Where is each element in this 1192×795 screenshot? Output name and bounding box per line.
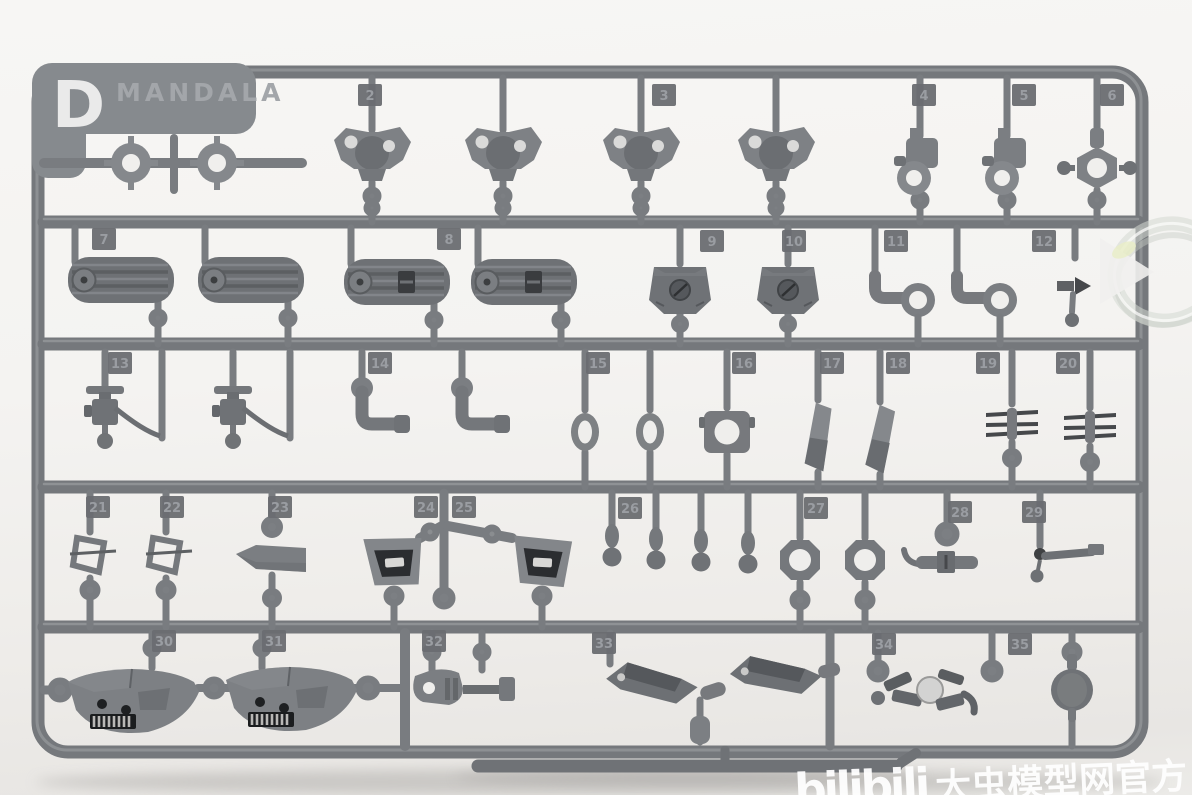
part-8-coil: [471, 259, 577, 305]
svg-text:18: 18: [889, 357, 907, 372]
part-number-tag: 9: [700, 230, 724, 252]
part-number-tag: 8: [437, 228, 461, 250]
svg-text:10: 10: [785, 235, 803, 250]
part-27-hex-ring: [780, 540, 820, 580]
bilibili-logo: bilibili: [793, 762, 928, 795]
part-number-tag: 19: [976, 352, 1000, 374]
svg-text:27: 27: [807, 502, 825, 517]
part-14-elbow-joint: [351, 377, 410, 433]
part-11-pipe-ring: [957, 276, 1017, 344]
svg-text:9: 9: [707, 235, 716, 250]
part-washer-a: [104, 136, 158, 190]
part-number-tag: 22: [160, 496, 184, 518]
part-25-scoop: [512, 536, 572, 588]
part-number-tag: 17: [820, 352, 844, 374]
svg-text:13: 13: [111, 357, 129, 372]
part-22-frame: [146, 538, 192, 572]
svg-text:2: 2: [365, 89, 374, 104]
part-28-t-bar: [904, 550, 978, 573]
part-number-tag: 31: [262, 630, 286, 652]
svg-text:25: 25: [455, 501, 473, 516]
part-9-chest-plate: [649, 267, 711, 314]
svg-text:11: 11: [887, 235, 905, 250]
part-2-torso: [465, 127, 542, 181]
sprue-photo: D MANDALA: [0, 0, 1192, 795]
photo-shadows: [35, 232, 1165, 795]
svg-text:16: 16: [735, 357, 753, 372]
part-14-elbow-joint: [451, 377, 510, 433]
part-number-tag: 13: [108, 352, 132, 374]
part-number-tag: 10: [782, 230, 806, 252]
part-23-wing: [236, 545, 306, 572]
part-3-torso: [603, 127, 680, 181]
part-30-hull: [68, 669, 199, 733]
part-35-disc: [1051, 654, 1093, 722]
part-16-square-ring: [699, 411, 755, 453]
svg-text:6: 6: [1107, 89, 1116, 104]
svg-text:29: 29: [1025, 506, 1043, 521]
part-13-clamp: [84, 386, 288, 449]
part-number-tag: 20: [1056, 352, 1080, 374]
svg-text:7: 7: [99, 233, 108, 248]
part-17-fin: [804, 402, 832, 471]
part-24-scoop: [363, 535, 424, 588]
part-15-oval-ring: [571, 413, 599, 451]
svg-text:22: 22: [163, 501, 181, 516]
part-number-tag: 15: [586, 352, 610, 374]
part-washer-b: [190, 136, 244, 190]
part-number-tag: 11: [884, 230, 908, 252]
part-3-torso: [738, 127, 815, 181]
svg-text:15: 15: [589, 357, 607, 372]
part-7-coil: [68, 257, 174, 303]
svg-text:32: 32: [425, 635, 443, 650]
part-31-hull: [226, 667, 357, 731]
part-12-pin: [1057, 277, 1091, 327]
svg-text:20: 20: [1059, 357, 1077, 372]
part-number-tag: 3: [652, 84, 676, 106]
svg-text:35: 35: [1011, 638, 1029, 653]
part-number-tag: 21: [86, 496, 110, 518]
part-8-coil: [344, 259, 450, 305]
svg-text:17: 17: [823, 357, 841, 372]
svg-text:33: 33: [595, 637, 613, 652]
part-29-rod: [1031, 544, 1105, 583]
part-5-ring-block: [982, 128, 1026, 195]
part-10-chest-plate: [757, 267, 819, 314]
part-number-tag: 24: [414, 496, 438, 518]
svg-text:26: 26: [621, 502, 639, 517]
part-18-fin: [865, 404, 896, 474]
part-number-tag: 27: [804, 497, 828, 519]
part-number-tag: 34: [872, 633, 896, 655]
svg-text:23: 23: [271, 501, 289, 516]
part-2-torso: [334, 127, 411, 181]
part-33-joint: [817, 662, 841, 680]
part-number-tag: 14: [368, 352, 392, 374]
part-33-bracket: [605, 655, 699, 710]
part-6-hex-joint: [1057, 128, 1137, 189]
part-11-pipe-ring: [875, 276, 935, 344]
sprue-gates: [44, 78, 1103, 746]
part-number-tag: 12: [1032, 230, 1056, 252]
part-32-bracket: [413, 669, 515, 705]
svg-text:24: 24: [417, 501, 435, 516]
part-number-tag: 35: [1008, 633, 1032, 655]
part-number-tag: 26: [618, 497, 642, 519]
part-number-tag: 33: [592, 632, 616, 654]
part-number-tag: 23: [268, 496, 292, 518]
part-number-tag: 5: [1012, 84, 1036, 106]
watermark-text: 大虫模型网官方: [935, 759, 1188, 795]
part-7-coil: [198, 257, 304, 303]
part-number-tag: 32: [422, 630, 446, 652]
part-27-hex-ring: [845, 540, 885, 580]
part-number-tag: 29: [1022, 501, 1046, 523]
svg-text:3: 3: [659, 89, 668, 104]
photo: D MANDALA: [0, 0, 1192, 795]
svg-text:30: 30: [155, 635, 173, 650]
part-20-comb: [1064, 411, 1116, 443]
svg-text:19: 19: [979, 357, 997, 372]
svg-text:14: 14: [371, 357, 389, 372]
part-number-tag: 4: [912, 84, 936, 106]
svg-text:21: 21: [89, 501, 107, 516]
part-15-oval-ring: [636, 413, 664, 451]
sprue-brand-label: MANDALA: [116, 78, 285, 107]
part-4-ring-block: [894, 128, 938, 195]
part-number-tag: 30: [152, 630, 176, 652]
part-number-tag: 25: [452, 496, 476, 518]
part-33-bracket: [728, 645, 825, 706]
sprue-letter: D: [52, 69, 105, 143]
part-number-tag: 28: [948, 501, 972, 523]
part-19-comb: [986, 408, 1038, 440]
svg-text:5: 5: [1019, 89, 1028, 104]
part-number-tag: 16: [732, 352, 756, 374]
part-number-tag: 7: [92, 228, 116, 250]
part-number-tags: 2 3 4 5 6 7 8 9 10 11 12 13 14 15 16 17 …: [86, 84, 1124, 655]
part-number-tag: 18: [886, 352, 910, 374]
svg-text:34: 34: [875, 638, 893, 653]
svg-text:28: 28: [951, 506, 969, 521]
part-number-tag: 2: [358, 84, 382, 106]
svg-text:4: 4: [919, 89, 928, 104]
part-21-frame: [70, 538, 116, 572]
svg-text:31: 31: [265, 635, 283, 650]
svg-text:12: 12: [1035, 235, 1053, 250]
svg-text:8: 8: [444, 233, 453, 248]
part-number-tag: 6: [1100, 84, 1124, 106]
